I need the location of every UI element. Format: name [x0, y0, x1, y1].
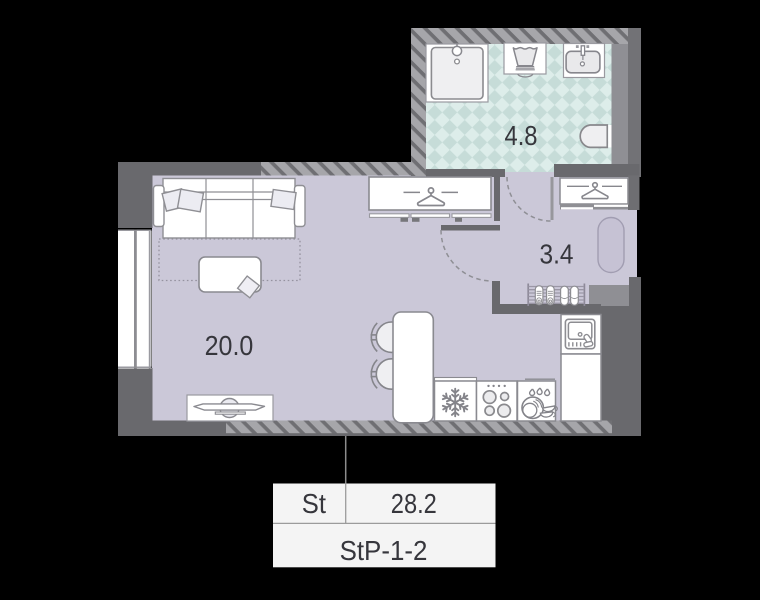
svg-text:3.4: 3.4	[540, 238, 574, 269]
svg-text:20.0: 20.0	[205, 330, 254, 361]
svg-text:St: St	[302, 488, 327, 519]
svg-text:28.2: 28.2	[391, 488, 437, 519]
svg-text:StP-1-2: StP-1-2	[340, 535, 428, 566]
svg-text:4.8: 4.8	[505, 120, 538, 151]
